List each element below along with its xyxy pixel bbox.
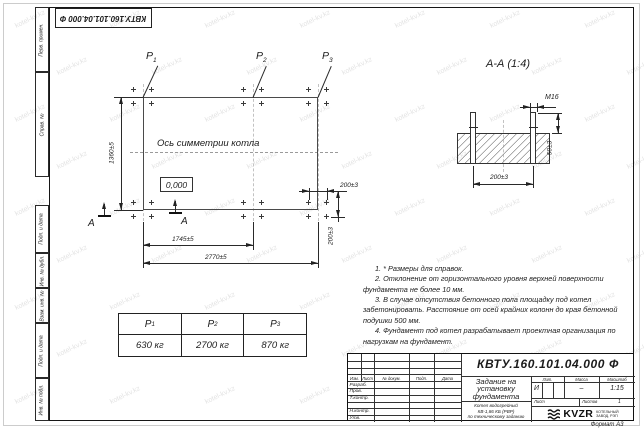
- note-item: 4. Фундамент под котел разрабатывает про…: [363, 326, 635, 347]
- sheets-label: Листов: [582, 399, 597, 404]
- dim-protrusion-label: 50±3: [547, 141, 554, 155]
- title-block: КВТУ.160.101.04.000 Ф Изм. Лист № докум.…: [347, 353, 634, 421]
- note-item: 3. В случае отсутствия бетонного пола пл…: [363, 295, 635, 326]
- anchor-bolt-marker: [324, 87, 329, 92]
- hl: [469, 127, 478, 128]
- anchor-bolt-marker: [306, 214, 311, 219]
- shape: P: [146, 50, 153, 62]
- arr: [327, 189, 334, 193]
- vl: [533, 166, 534, 188]
- margin-field-podp-data-2: Подп. и дата: [35, 323, 49, 378]
- note-item: 2. Отклонение от горизонтального уровня …: [363, 274, 635, 295]
- hl: [552, 133, 562, 134]
- arr: [523, 105, 530, 109]
- margin-field-vzam-inv: Взам. инв. №: [35, 288, 49, 323]
- margin-field-label: Инв. № дубл.: [39, 255, 45, 286]
- arr: [119, 203, 123, 210]
- anchor-bolt-marker: [131, 200, 136, 205]
- lit-label: Лит.: [531, 377, 564, 382]
- anchor-bolt-marker: [131, 101, 136, 106]
- scale-label: Масштаб: [599, 377, 635, 382]
- hl: [143, 245, 253, 246]
- load-table: P1 P2 P3 630 кг 2700 кг 870 кг: [118, 313, 307, 357]
- anchor-bolt-marker: [324, 101, 329, 106]
- anchor-bolt-marker: [259, 214, 264, 219]
- anchor-bolt-marker: [149, 214, 154, 219]
- hl: [348, 402, 461, 403]
- shape: 2: [263, 57, 267, 64]
- section-cut-bar-left: [98, 215, 111, 217]
- dim-spacing-label: 200±3: [490, 174, 508, 181]
- anchor-bolt-marker: [259, 101, 264, 106]
- margin-field-perv-primen: Перв. примен.: [35, 7, 49, 72]
- shape: 3: [329, 57, 333, 64]
- section-cut-bar-right: [169, 212, 182, 214]
- load-value-p1: 630 кг: [119, 335, 182, 356]
- kvzr-coil-icon: [547, 409, 560, 420]
- logo-area: KVZR КОТЕЛЬНЫЙ ЗАВОД, РЭП: [532, 406, 634, 422]
- load-table-header-row: P1 P2 P3: [119, 314, 306, 335]
- logo-text: KVZR: [563, 408, 593, 420]
- arr: [302, 189, 309, 193]
- anchor-bolt-marker: [149, 200, 154, 205]
- arr: [102, 202, 106, 209]
- mass-value: –: [564, 385, 599, 392]
- hl: [461, 401, 531, 402]
- vl: [542, 382, 543, 398]
- anchor-bolt-marker: [241, 214, 246, 219]
- anchor-bolt-marker: [241, 87, 246, 92]
- anchor-bolt-marker: [131, 214, 136, 219]
- section-letter-right: А: [181, 216, 188, 227]
- format-label: Формат А3: [580, 422, 634, 428]
- sign-row-utv: Утв.: [350, 416, 361, 421]
- title-block-object: Котел водогрейный КВ-1,86 КБ (РВР) по те…: [461, 403, 531, 420]
- sign-row-nkontr: Н.контр.: [350, 409, 370, 414]
- load-point-label-p3: P3: [322, 50, 333, 64]
- load-table-value-row: 630 кг 2700 кг 870 кг: [119, 335, 306, 356]
- vl: [409, 354, 410, 422]
- shape: 3: [277, 321, 280, 328]
- arr: [336, 191, 340, 198]
- load-value-p3: 870 кг: [244, 335, 306, 356]
- arr: [119, 97, 123, 104]
- vl: [309, 188, 310, 200]
- hl: [531, 382, 635, 383]
- margin-field-label: Подп. и дата: [39, 335, 45, 366]
- logo-caption: КОТЕЛЬНЫЙ ЗАВОД, РЭП: [596, 410, 619, 418]
- anchor-bolt-marker: [306, 101, 311, 106]
- load-value-p2: 2700 кг: [182, 335, 245, 356]
- sheets-value: 1: [618, 399, 621, 405]
- elevation-mark: 0,000: [160, 177, 193, 192]
- arr: [143, 261, 150, 265]
- sign-row-razrab: Разраб.: [350, 383, 367, 388]
- anchor-bolt-marker: [259, 200, 264, 205]
- vl: [253, 222, 254, 250]
- vl: [121, 97, 122, 210]
- hl: [348, 368, 461, 369]
- arr: [537, 105, 544, 109]
- margin-field-inv-podl: Инв. № подл.: [35, 378, 49, 421]
- arr: [336, 210, 340, 217]
- anchor-bolt-marker: [131, 87, 136, 92]
- shape: [548, 417, 560, 419]
- load-table-header-p1: P1: [119, 314, 182, 335]
- section-title: А-А (1:4): [486, 58, 530, 70]
- anchor-bolt-marker: [306, 200, 311, 205]
- shape: 1: [151, 321, 154, 328]
- anchor-bolt-marker: [306, 87, 311, 92]
- title-block-name: Задание на установку фундамента: [461, 378, 531, 401]
- anchor-bolt-marker: [324, 214, 329, 219]
- load-point-label-p2: P2: [256, 50, 267, 64]
- hl: [473, 184, 533, 185]
- margin-field-label: Взам. инв. №: [39, 290, 45, 321]
- anchor-bolt-marker: [149, 87, 154, 92]
- load-table-header-p2: P2: [182, 314, 245, 335]
- margin-field-inv-dubl: Инв. № дубл.: [35, 253, 49, 288]
- shape: фундамента: [461, 393, 531, 401]
- margin-field-label: Подп. и дата: [39, 213, 45, 244]
- notes-block: 1. * Размеры для справок. 2. Отклонение …: [363, 264, 635, 347]
- dim-width-inner-label: 1745±5: [172, 236, 194, 243]
- change-col-podp: Подп.: [409, 376, 434, 381]
- anchor-bolt-left: [470, 112, 476, 164]
- dim-height-label: 1360±5: [109, 142, 116, 164]
- sign-row-prov: Пров.: [350, 389, 363, 394]
- anchor-bolt-marker: [324, 200, 329, 205]
- arr: [556, 126, 560, 133]
- arr: [246, 243, 253, 247]
- shape: P: [270, 319, 277, 330]
- margin-field-sprav-no: Справ. №: [35, 72, 49, 177]
- margin-field-podp-data-1: Подп. и дата: [35, 205, 49, 253]
- lit-value: И: [531, 385, 542, 392]
- dim-cluster-v-label: 200±3: [328, 227, 335, 245]
- margin-field-label: Справ. №: [39, 113, 45, 136]
- shape: 2: [214, 321, 217, 328]
- note-item: 1. * Размеры для справок.: [363, 264, 635, 274]
- dim-width-total-label: 2770±5: [205, 254, 227, 261]
- change-col-dokum: № докум.: [374, 376, 409, 381]
- arr: [173, 199, 177, 206]
- vl: [579, 398, 580, 406]
- anchor-bolt-right: [530, 112, 536, 164]
- vl: [374, 354, 375, 422]
- load-table-header-p3: P3: [244, 314, 306, 335]
- hl: [143, 263, 318, 264]
- shape: 1: [153, 57, 157, 64]
- section-letter-left: А: [88, 218, 95, 229]
- change-col-list: Лист: [361, 376, 374, 381]
- change-col-izm: Изм.: [348, 376, 361, 381]
- anchor-bolt-marker: [149, 101, 154, 106]
- dim-cluster-h-label: 200±3: [340, 182, 358, 189]
- elevation-value: 0,000: [166, 180, 187, 190]
- arr: [311, 261, 318, 265]
- change-col-data: Дата: [434, 376, 461, 381]
- scale-value: 1:15: [599, 385, 635, 392]
- shape: [548, 410, 560, 412]
- shape: ЗАВОД, РЭП: [596, 414, 619, 418]
- shape: P: [256, 50, 263, 62]
- hl: [529, 127, 538, 128]
- thread-label: М16: [545, 94, 559, 101]
- shape: P: [145, 319, 152, 330]
- margin-field-label: Перв. примен.: [39, 23, 45, 56]
- anchor-bolt-marker: [241, 200, 246, 205]
- shape: P: [322, 50, 329, 62]
- vl: [553, 382, 554, 398]
- mass-label: Масса: [564, 377, 599, 382]
- vl: [318, 222, 319, 268]
- axis-label: Ось симметрии котла: [157, 138, 259, 149]
- hl: [114, 210, 143, 211]
- rotated-doc-number-stamp: КВТУ.160.101.04.000 Ф: [55, 8, 152, 28]
- arr: [526, 182, 533, 186]
- foundation-outline: [143, 97, 318, 210]
- shape: [548, 413, 560, 415]
- vl: [434, 354, 435, 422]
- hl: [348, 415, 461, 416]
- load-point-label-p1: P1: [146, 50, 157, 64]
- sign-row-tkontr: Т.контр.: [350, 396, 369, 401]
- anchor-bolt-marker: [259, 87, 264, 92]
- sheet-label: Лист: [534, 399, 545, 404]
- hl: [348, 388, 461, 389]
- hl: [348, 361, 461, 362]
- drawing-sheet: kotel-kv.kzkotel-kv.kzkotel-kv.kzkotel-k…: [0, 0, 644, 430]
- arr: [143, 243, 150, 247]
- margin-field-label: Инв. № подл.: [39, 384, 45, 415]
- title-block-doc-number: КВТУ.160.101.04.000 Ф: [461, 357, 635, 371]
- arr: [473, 182, 480, 186]
- arr: [556, 113, 560, 120]
- shape: по техническому заданию: [461, 414, 531, 420]
- anchor-bolt-marker: [241, 101, 246, 106]
- rotated-doc-number: КВТУ.160.101.04.000 Ф: [60, 14, 146, 23]
